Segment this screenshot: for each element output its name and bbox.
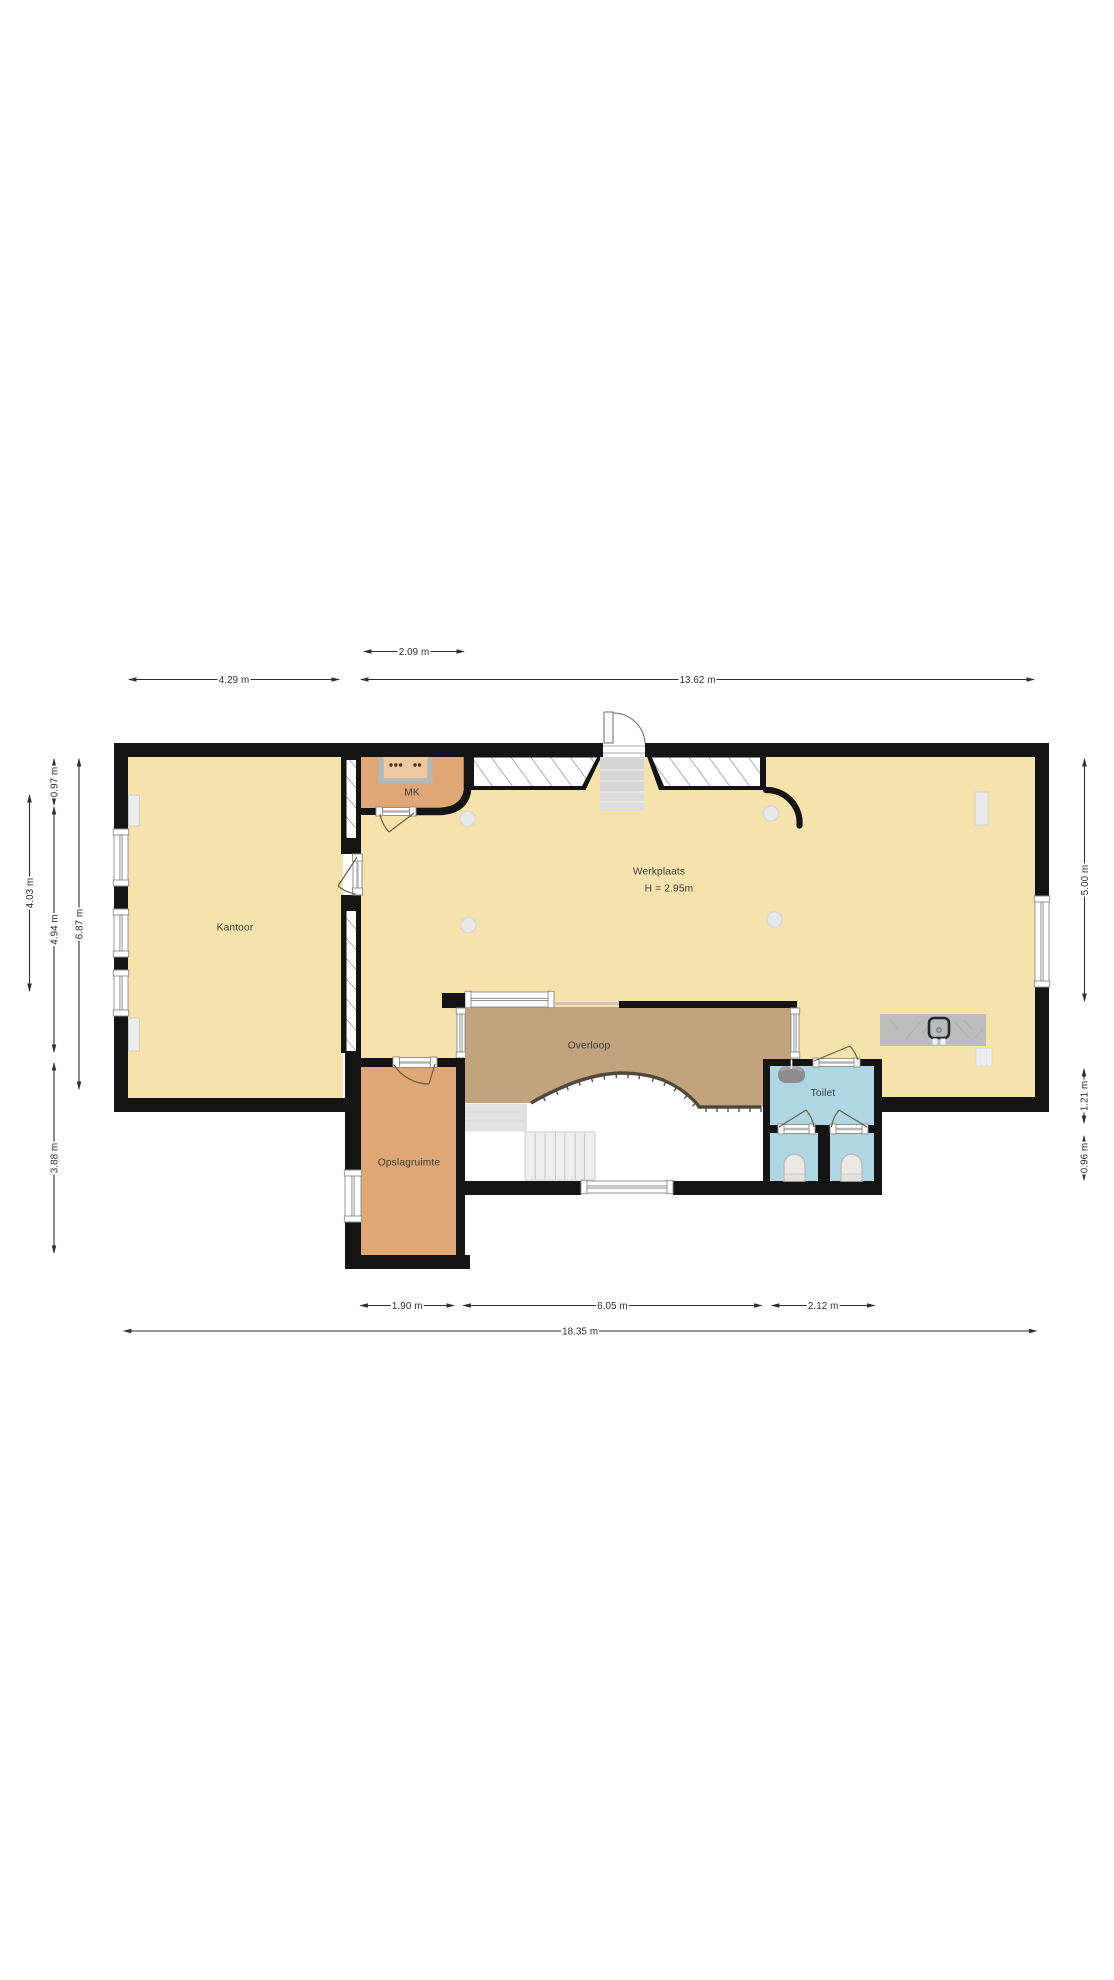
svg-text:4.03 m: 4.03 m: [25, 878, 36, 909]
svg-text:6.05 m: 6.05 m: [597, 1301, 628, 1312]
svg-text:1.21 m: 1.21 m: [1080, 1081, 1091, 1112]
svg-text:Toilet: Toilet: [811, 1088, 836, 1099]
svg-text:1.90 m: 1.90 m: [392, 1301, 423, 1312]
svg-text:3.88 m: 3.88 m: [50, 1143, 61, 1174]
svg-text:18.35 m: 18.35 m: [562, 1327, 598, 1338]
svg-text:H = 2.95m: H = 2.95m: [645, 884, 694, 895]
svg-text:Overloop: Overloop: [568, 1041, 611, 1052]
svg-text:2.09 m: 2.09 m: [399, 647, 430, 658]
svg-text:4.94 m: 4.94 m: [50, 914, 61, 945]
svg-text:Opslagruimte: Opslagruimte: [378, 1158, 441, 1169]
svg-text:MK: MK: [404, 788, 420, 799]
svg-text:2.12 m: 2.12 m: [808, 1301, 839, 1312]
svg-text:5.00 m: 5.00 m: [1080, 865, 1091, 896]
svg-text:6.87 m: 6.87 m: [75, 909, 86, 940]
svg-text:Kantoor: Kantoor: [217, 923, 254, 934]
svg-text:0.96 m: 0.96 m: [1080, 1143, 1091, 1174]
svg-text:0.97 m: 0.97 m: [50, 767, 61, 798]
svg-text:Werkplaats: Werkplaats: [633, 867, 685, 878]
svg-text:4.29 m: 4.29 m: [219, 675, 250, 686]
svg-text:13.62 m: 13.62 m: [679, 675, 715, 686]
